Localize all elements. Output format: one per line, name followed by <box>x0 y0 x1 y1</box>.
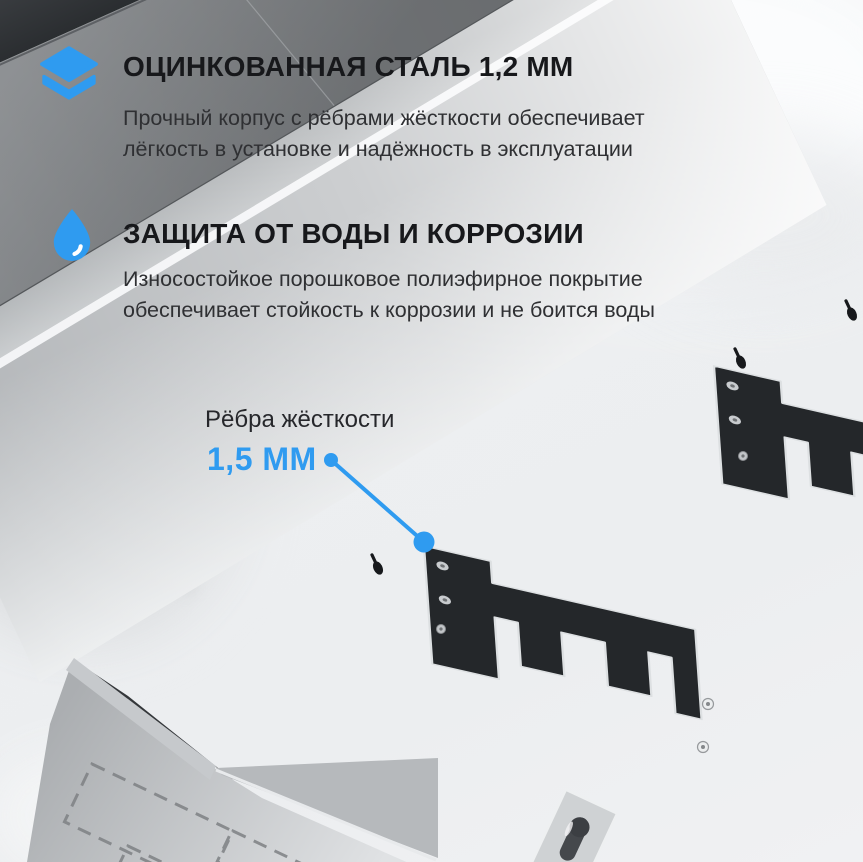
callout-label: Рёбра жёсткости <box>205 406 394 434</box>
mounting-keyhole-tab <box>531 790 617 862</box>
feature-description: Прочный корпус с рёбрами жёсткости обесп… <box>123 103 645 165</box>
feature-description-line: Износостойкое порошковое полиэфирное пок… <box>123 264 655 295</box>
feature-description-line: лёгкость в установке и надёжность в эксп… <box>123 134 645 165</box>
stiffening-rib-2 <box>714 366 863 545</box>
product-infographic: ОЦИНКОВАННАЯ СТАЛЬ 1,2 ММ Прочный корпус… <box>0 0 863 862</box>
feature-description-line: Прочный корпус с рёбрами жёсткости обесп… <box>123 103 645 134</box>
wall-hook <box>730 346 748 371</box>
feature-title: ЗАЩИТА ОТ ВОДЫ И КОРРОЗИИ <box>123 218 584 250</box>
leader-dot-start <box>324 453 338 467</box>
wall-hook <box>367 552 385 577</box>
leader-dot-end <box>414 532 435 553</box>
feature-description: Износостойкое порошковое полиэфирное пок… <box>123 264 655 326</box>
feature-description-line: обеспечивает стойкость к коррозии и не б… <box>123 295 655 326</box>
water-drop-icon <box>47 206 97 268</box>
wall-hook <box>841 298 859 323</box>
stiffening-rib-1 <box>424 546 702 725</box>
callout-value: 1,5 ММ <box>207 441 317 478</box>
layers-icon <box>35 41 103 107</box>
feature-title: ОЦИНКОВАННАЯ СТАЛЬ 1,2 ММ <box>123 51 573 83</box>
